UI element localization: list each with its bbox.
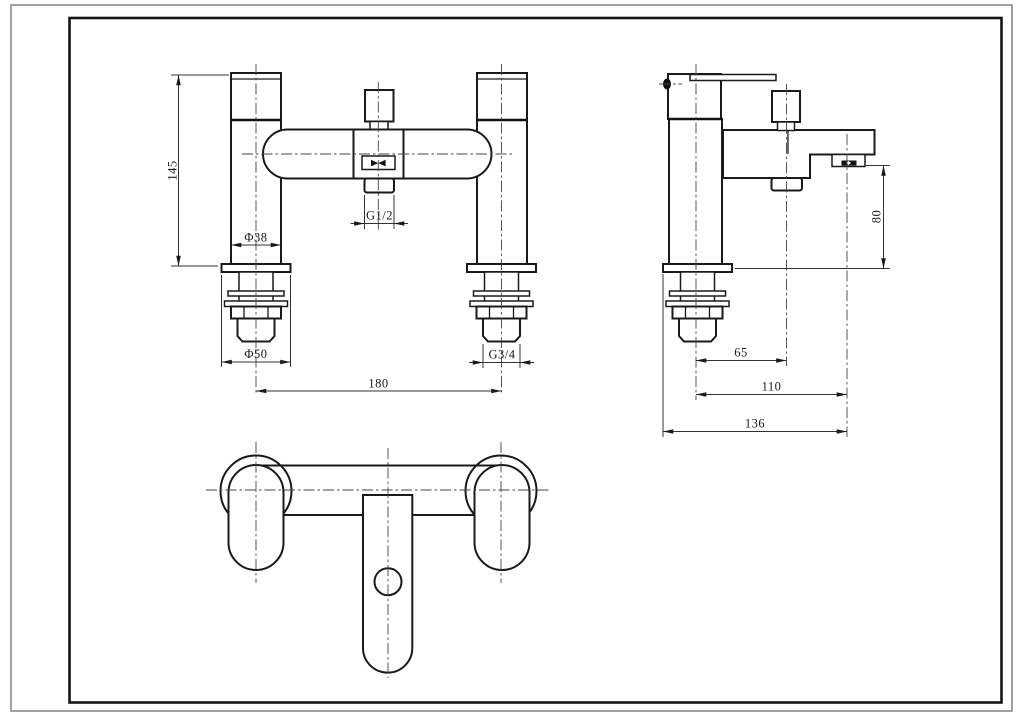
plan-right-pillar <box>475 465 530 570</box>
technical-drawing-canvas: 145 Φ38 Φ50 G3/4 G <box>0 0 1024 723</box>
dim-height-label: 145 <box>166 160 180 180</box>
dim-inlet-thread-label: G3/4 <box>489 348 516 362</box>
dim-pillar-diameter-label: Φ38 <box>244 231 267 245</box>
side-pillar <box>669 119 722 264</box>
dim-spout-reach-label: 110 <box>762 380 782 394</box>
dim-base-diameter-label: Φ50 <box>244 347 267 361</box>
dim-diverter-offset-label: 65 <box>734 346 748 360</box>
dim-hole-centres-label: 180 <box>368 377 388 391</box>
dim-overall-depth-label: 136 <box>745 417 765 431</box>
front-shower-outlet <box>365 179 395 193</box>
side-handle-lever <box>690 75 776 81</box>
dim-diverter-thread-label: G1/2 <box>366 209 393 223</box>
dim-outlet-height-label: 80 <box>870 210 884 224</box>
drawing-sheet: 145 Φ38 Φ50 G3/4 G <box>0 0 1024 723</box>
spout-aerator <box>832 155 865 167</box>
